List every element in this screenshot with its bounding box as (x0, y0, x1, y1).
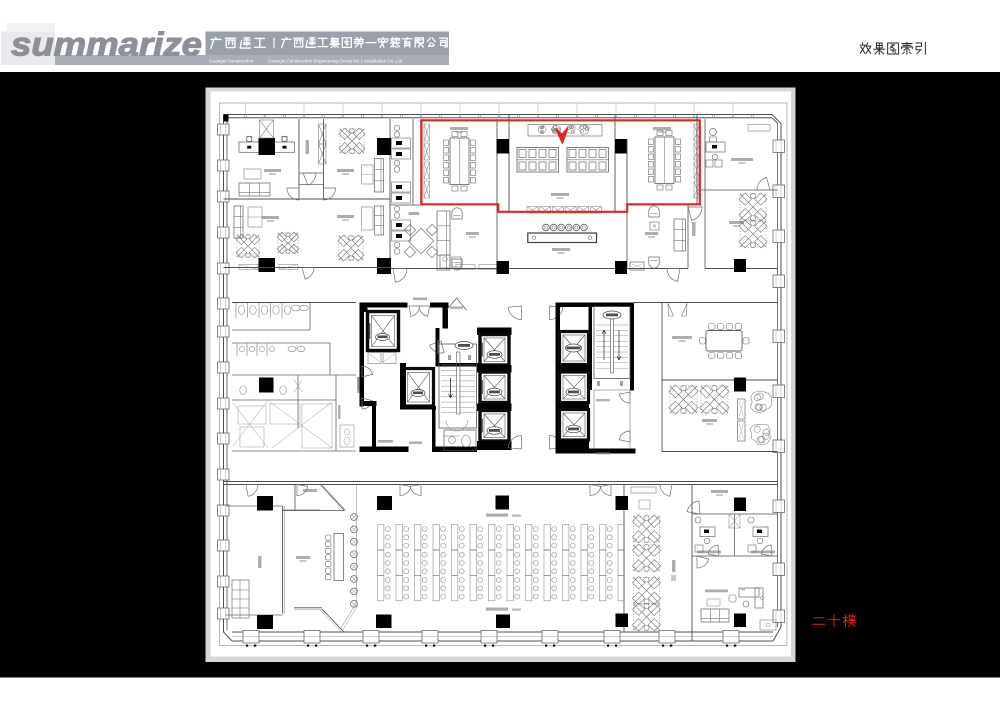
svg-text:summarize: summarize (11, 26, 202, 63)
svg-text:Guangxi Construction Engineeri: Guangxi Construction Engineering Group N… (268, 59, 403, 64)
svg-text:Guangxi Construction: Guangxi Construction (209, 59, 254, 64)
